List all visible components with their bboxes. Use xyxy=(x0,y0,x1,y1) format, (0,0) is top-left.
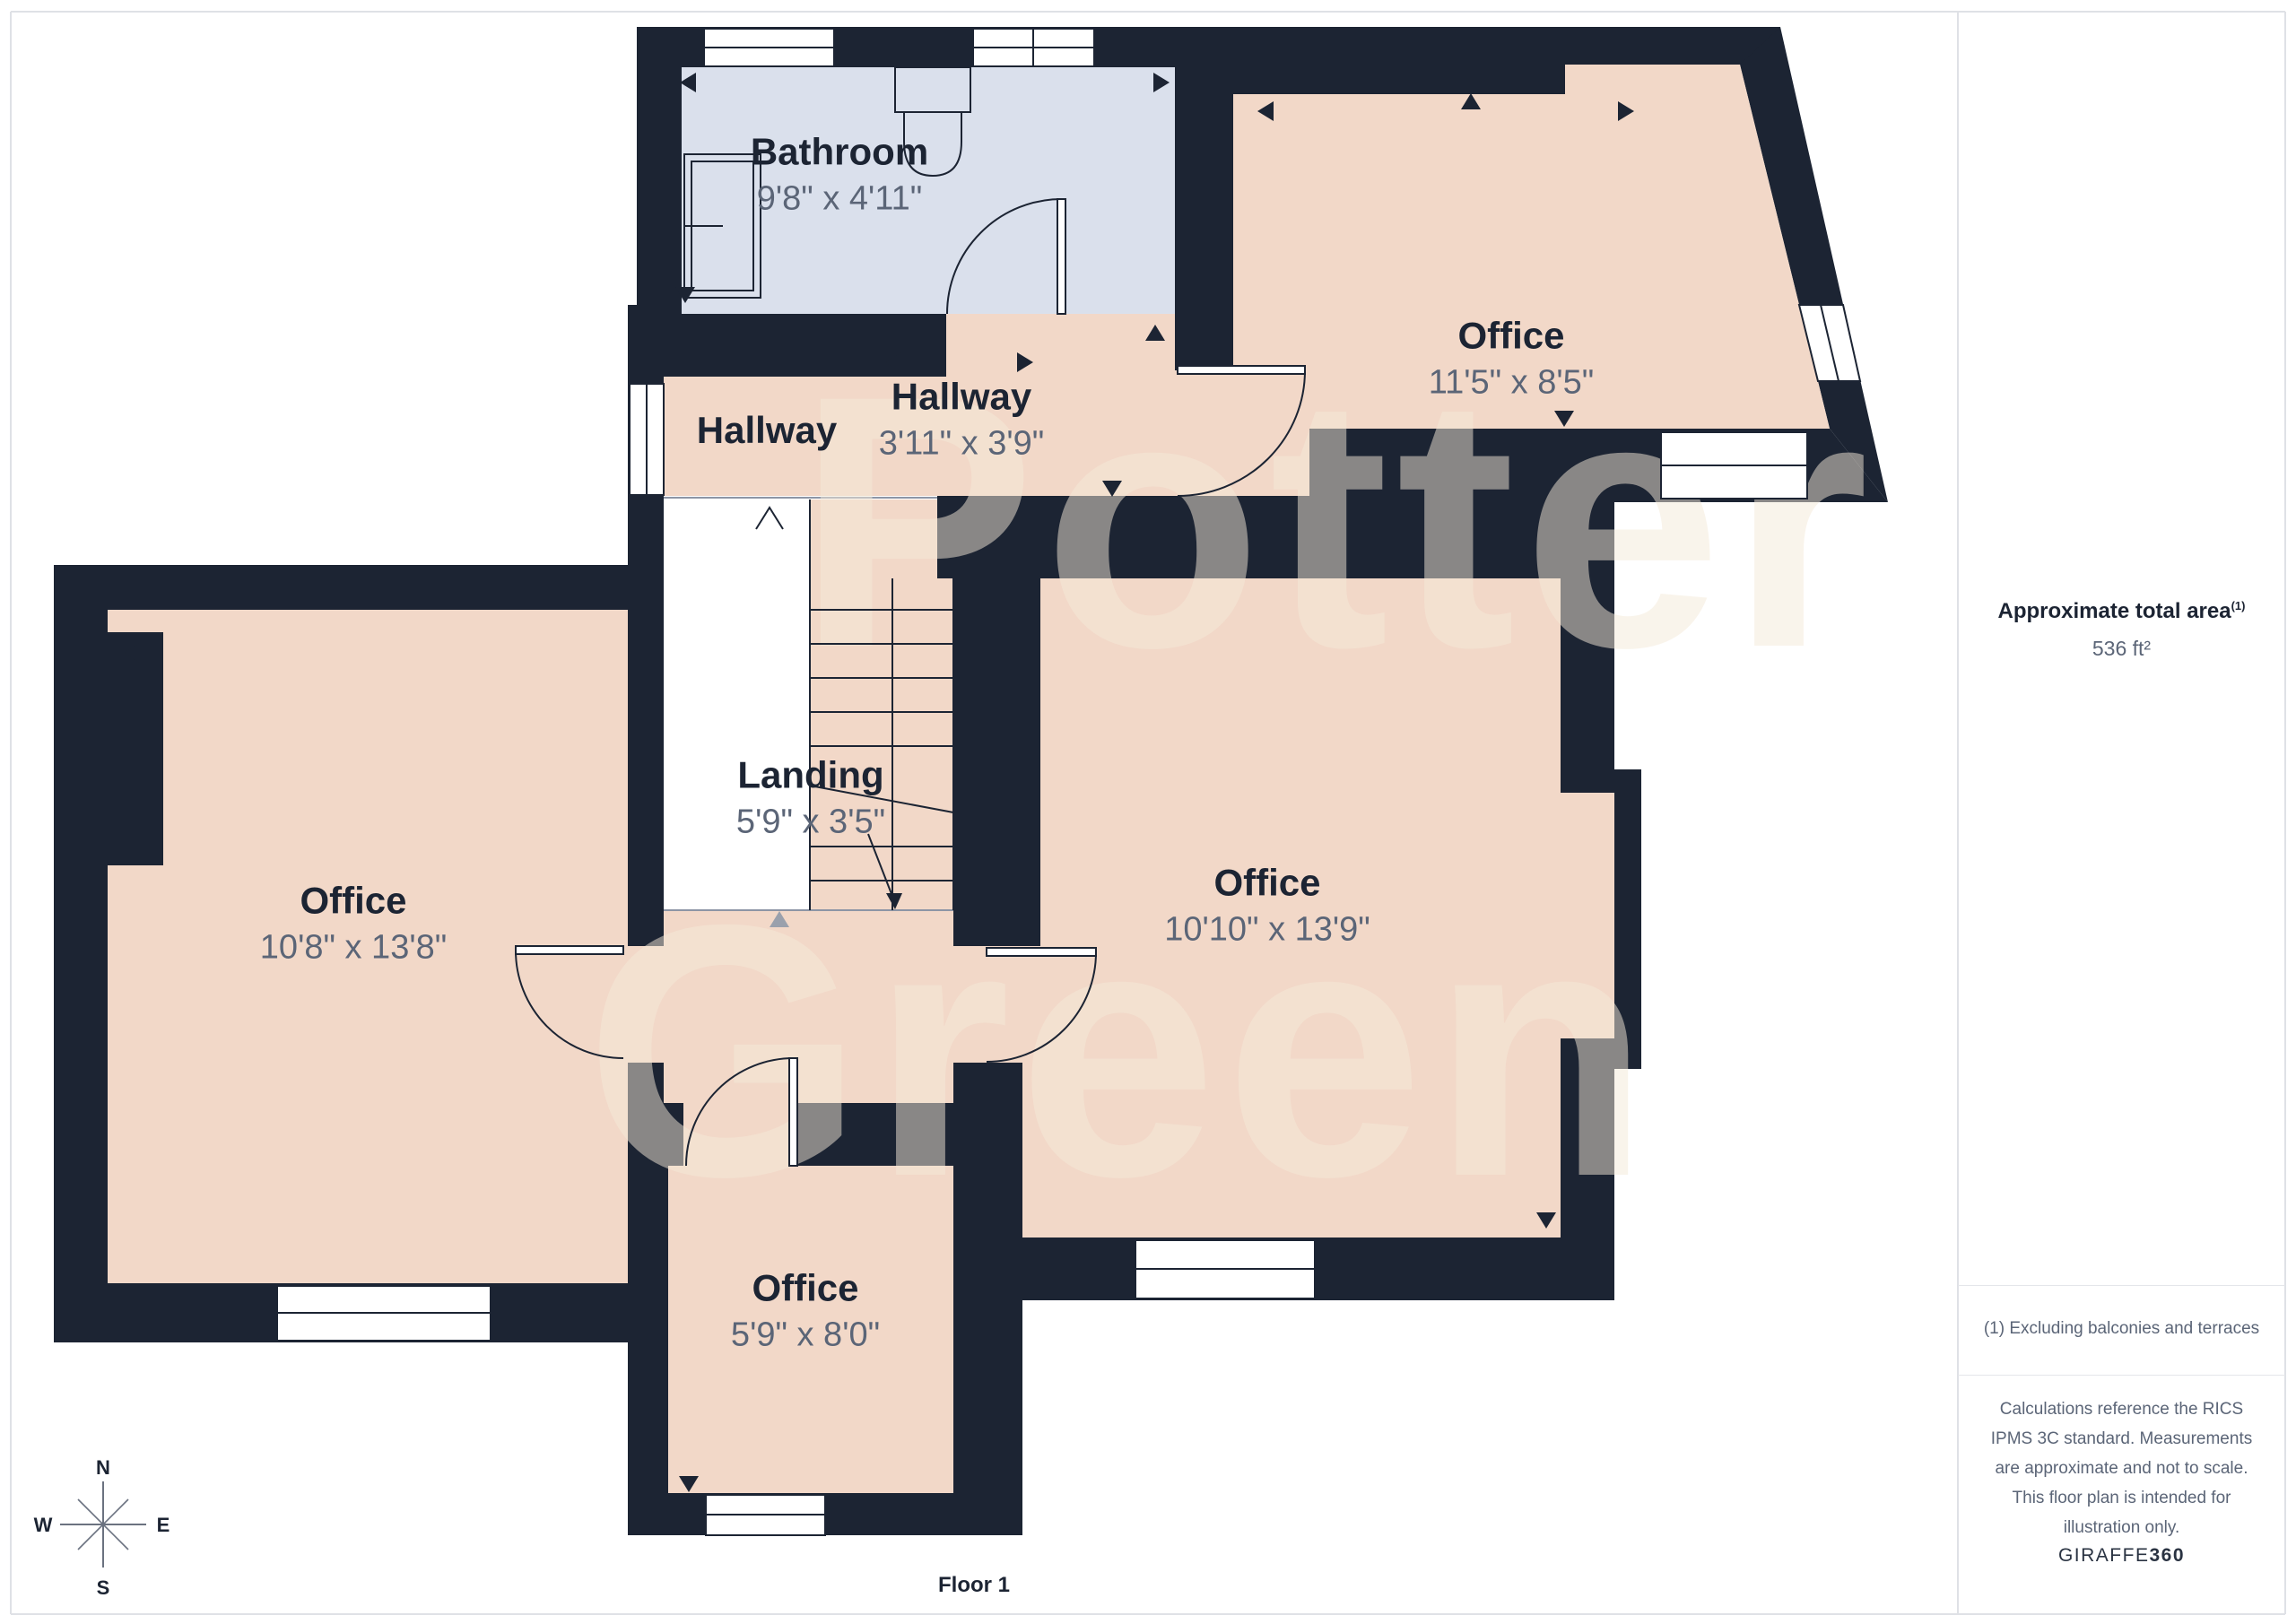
wall-segment xyxy=(54,565,108,1342)
total-area-value: 536 ft² xyxy=(1958,637,2285,661)
brand-name: GIRAFFE xyxy=(2058,1545,2150,1566)
disclaimer-text: Calculations reference the RICS IPMS 3C … xyxy=(1979,1394,2265,1542)
floor-bathroom xyxy=(682,67,1175,314)
brand-suffix: 360 xyxy=(2149,1545,2185,1566)
compass-south: S xyxy=(97,1576,110,1599)
floor-landing xyxy=(664,499,810,910)
wall-segment xyxy=(1193,27,1565,94)
info-sidebar: Approximate total area(1) 536 ft² (1) Ex… xyxy=(1958,12,2285,1614)
floor-title: Floor 1 xyxy=(938,1573,1010,1598)
total-area-superscript: (1) xyxy=(2231,599,2246,612)
compass-east: E xyxy=(157,1514,170,1536)
wall-segment xyxy=(54,565,682,610)
door-leaf xyxy=(987,948,1096,956)
compass: N S W E xyxy=(34,1456,170,1599)
brand-logo: GIRAFFE360 xyxy=(1958,1545,2285,1567)
floorplan-page: Potter Green xyxy=(0,0,2296,1624)
watermark-line2: Green xyxy=(585,850,1657,1251)
door-leaf xyxy=(789,1058,797,1166)
compass-north: N xyxy=(96,1456,110,1479)
door-leaf xyxy=(1057,199,1065,314)
sidebar-divider xyxy=(1958,1285,2285,1286)
total-area-title-text: Approximate total area xyxy=(1998,599,2231,623)
door-leaf xyxy=(1178,366,1305,374)
sidebar-divider xyxy=(1958,1375,2285,1376)
compass-west: W xyxy=(34,1514,53,1536)
watermark-line1: Potter xyxy=(796,321,1876,722)
area-footnote: (1) Excluding balconies and terraces xyxy=(1958,1319,2285,1339)
wall-chimney xyxy=(108,632,163,865)
total-area-title: Approximate total area(1) xyxy=(1958,599,2285,624)
floorplan-drawing: Potter Green xyxy=(0,0,2296,1624)
door-leaf xyxy=(516,946,623,954)
total-area-block: Approximate total area(1) 536 ft² xyxy=(1958,599,2285,661)
